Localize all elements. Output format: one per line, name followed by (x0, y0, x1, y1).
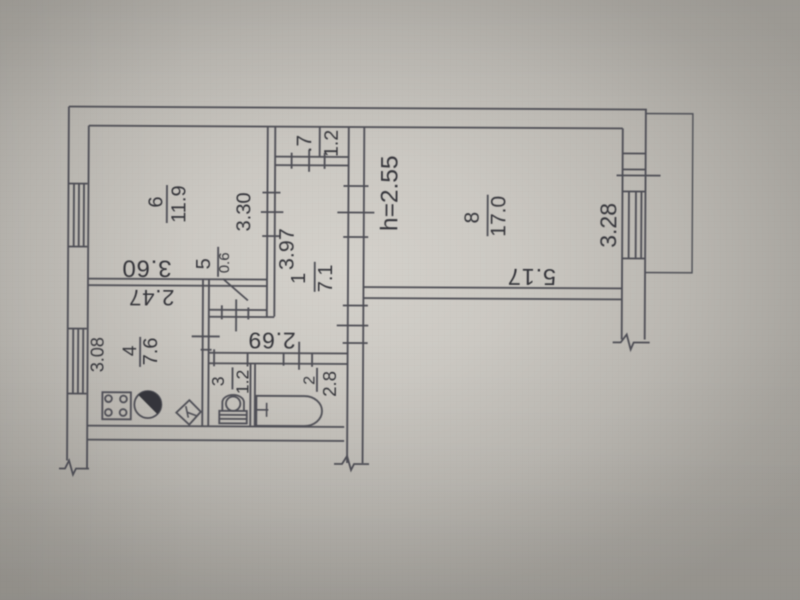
svg-text:3.60: 3.60 (122, 254, 172, 281)
svg-text:7.6: 7.6 (140, 337, 162, 365)
svg-text:6: 6 (145, 196, 167, 207)
svg-text:4: 4 (120, 345, 141, 356)
svg-text:1: 1 (288, 273, 310, 284)
svg-text:3.28: 3.28 (595, 203, 621, 248)
svg-text:3.97: 3.97 (275, 228, 299, 270)
svg-text:8: 8 (461, 212, 484, 224)
svg-text:2.47: 2.47 (128, 285, 174, 310)
svg-text:5.17: 5.17 (507, 264, 556, 290)
svg-text:3.08: 3.08 (88, 337, 108, 372)
svg-text:7.1: 7.1 (315, 264, 337, 292)
svg-text:11.9: 11.9 (168, 185, 190, 223)
svg-text:3.30: 3.30 (233, 192, 255, 231)
svg-text:5: 5 (193, 258, 215, 269)
svg-text:h=2.55: h=2.55 (376, 155, 403, 231)
svg-text:.7: .7 (293, 135, 316, 153)
svg-text:2: 2 (301, 376, 318, 385)
svg-text:2.8: 2.8 (319, 371, 340, 397)
svg-text:17.0: 17.0 (487, 196, 510, 237)
svg-text:3: 3 (208, 376, 228, 386)
svg-text:1.2: 1.2 (232, 370, 252, 394)
svg-text:1.2: 1.2 (321, 130, 343, 157)
svg-text:2.69: 2.69 (248, 327, 296, 353)
